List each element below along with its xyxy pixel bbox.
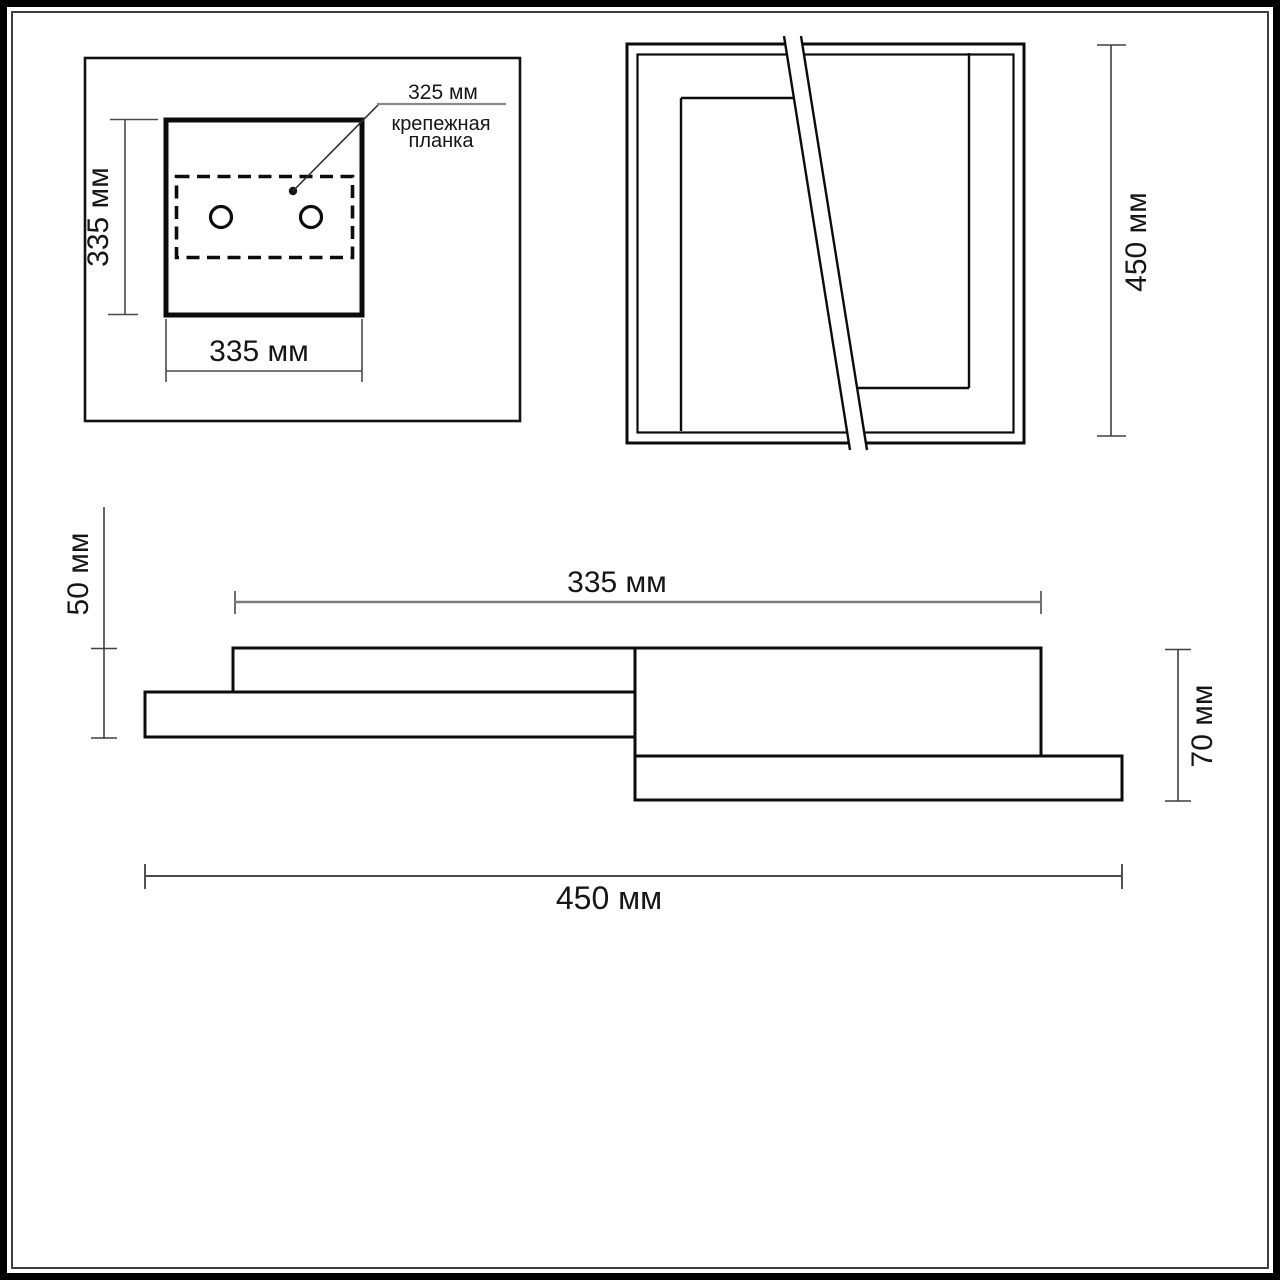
mounting-hole-right — [301, 207, 322, 228]
front-height-label: 335 мм — [82, 167, 115, 267]
front-view-body-square — [166, 120, 362, 315]
side-profile-lower-right-bar — [635, 756, 1122, 800]
bracket-width-label: 325 мм — [408, 81, 478, 104]
diagonal-band-mask — [784, 36, 867, 450]
diagonal-band-right-edge — [801, 36, 867, 450]
front-view: 325 мм крепежная планка 335 мм 335 мм — [82, 58, 520, 421]
side-right-height-label: 70 мм — [1186, 685, 1219, 768]
side-profile-upper-left-bar — [233, 648, 635, 692]
technical-drawing-canvas: 325 мм крепежная планка 335 мм 335 мм — [0, 0, 1280, 1280]
side-profile-lower-left-bar — [145, 692, 635, 737]
mounting-plate-dashed-outline — [177, 177, 353, 258]
side-panel-width-label: 335 мм — [567, 566, 667, 599]
diagonal-band-left-edge — [784, 36, 850, 450]
dimension-drawing-page: 325 мм крепежная планка 335 мм 335 мм — [0, 0, 1280, 1280]
bracket-name-line2: планка — [409, 130, 475, 152]
side-left-height-label: 50 мм — [62, 533, 95, 616]
top-view-height-label: 450 мм — [1120, 192, 1153, 292]
side-profile-right-block — [635, 648, 1041, 756]
front-width-label: 335 мм — [209, 335, 309, 368]
leader-line — [293, 104, 379, 191]
mounting-hole-left — [211, 207, 232, 228]
side-total-width-label: 450 мм — [556, 880, 662, 916]
side-view: 335 мм 50 мм 70 мм 450 мм — [62, 507, 1219, 916]
top-view: 450 мм — [627, 36, 1153, 450]
